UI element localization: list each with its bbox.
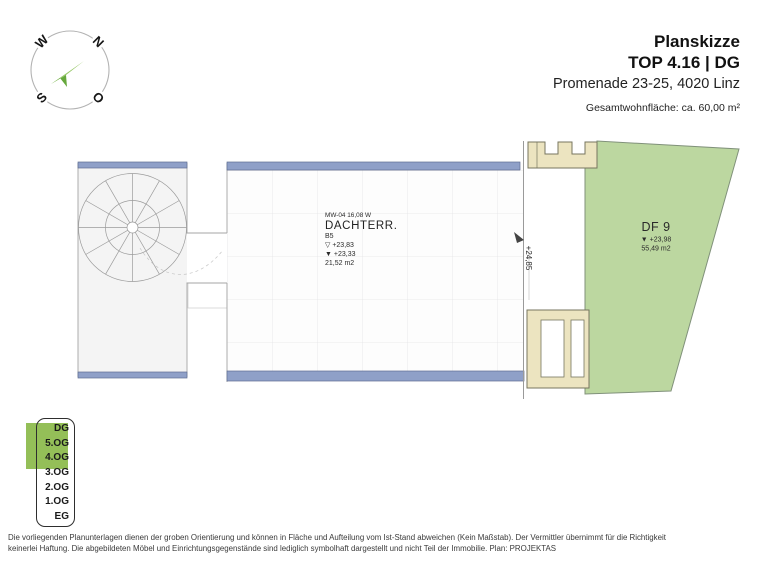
terrace-room-code: B5 (325, 233, 334, 240)
roof-name: DF 9 (641, 220, 670, 234)
floor-legend: DG 5.OG 4.OG 3.OG 2.OG 1.OG EG (26, 418, 86, 530)
terrace-level-top: ▽ +23,83 (325, 242, 354, 249)
address-line: Promenade 23-25, 4020 Linz (553, 73, 740, 95)
roof-level: ▼ +23,98 (641, 237, 672, 244)
legend-floor-2og: 2.OG (37, 481, 74, 494)
plan-page: W N S O (0, 0, 768, 576)
terrace-area (227, 163, 524, 382)
roof-label: DF 9 ▼ +23,98 55,49 m2 (641, 220, 672, 253)
total-area-note: Gesamtwohnfläche: ca. 60,00 m² (553, 102, 740, 114)
legend-floor-1og: 1.OG (37, 495, 74, 508)
compass-south-label: S (33, 89, 50, 106)
legend-floor-5og: 5.OG (37, 437, 74, 450)
disclaimer-line2: keinerlei Haftung. Die abgebildeten Möbe… (8, 543, 764, 554)
terrace-room-name: DACHTERR. (325, 220, 398, 232)
compass-east-label: O (89, 89, 107, 107)
dormer-structure (527, 310, 589, 388)
terrace-area-value: 21,52 m2 (325, 260, 354, 267)
legend-floor-4og: 4.OG (37, 451, 74, 464)
terrace-tile-grid (227, 170, 524, 371)
disclaimer: Die vorliegenden Planunterlagen dienen d… (8, 532, 764, 554)
disclaimer-line1: Die vorliegenden Planunterlagen dienen d… (8, 532, 764, 543)
dimension-label: +24,85 (524, 246, 533, 271)
terrace-level-bottom: ▼ +23,33 (325, 251, 356, 258)
chimney-structure (528, 142, 597, 168)
legend-floor-dg: DG (37, 422, 74, 435)
compass-arrow-icon (51, 61, 84, 87)
terrace-wall-code: MW-04 16,08 W (325, 212, 372, 219)
corridor (187, 233, 228, 283)
title-block: Planskizze TOP 4.16 | DG Promenade 23-25… (553, 31, 740, 114)
compass-north-label: N (90, 33, 107, 50)
compass-rose: W N S O (31, 31, 109, 109)
unit-title: TOP 4.16 | DG (553, 52, 740, 73)
page-title: Planskizze (553, 31, 740, 52)
legend-box: DG 5.OG 4.OG 3.OG 2.OG 1.OG EG (36, 418, 75, 527)
roof-area-df9 (585, 141, 739, 394)
compass-west-label: W (32, 31, 52, 51)
legend-floor-3og: 3.OG (37, 466, 74, 479)
legend-floor-eg: EG (37, 510, 74, 523)
roof-area-value: 55,49 m2 (641, 246, 670, 253)
